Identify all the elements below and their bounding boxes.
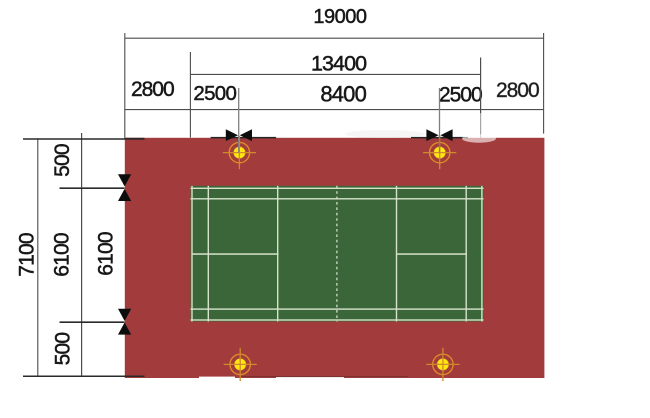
svg-text:7100: 7100 bbox=[16, 233, 39, 277]
svg-text:19000: 19000 bbox=[313, 6, 366, 28]
svg-text:500: 500 bbox=[52, 333, 75, 366]
svg-text:500: 500 bbox=[51, 144, 74, 177]
svg-text:8400: 8400 bbox=[320, 82, 366, 107]
svg-text:2500: 2500 bbox=[193, 82, 236, 105]
svg-text:6100: 6100 bbox=[95, 232, 118, 276]
svg-text:2800: 2800 bbox=[496, 79, 539, 102]
svg-text:6100: 6100 bbox=[51, 233, 74, 277]
svg-text:2500: 2500 bbox=[439, 83, 482, 106]
svg-text:13400: 13400 bbox=[311, 51, 367, 75]
svg-text:2800: 2800 bbox=[131, 78, 174, 101]
